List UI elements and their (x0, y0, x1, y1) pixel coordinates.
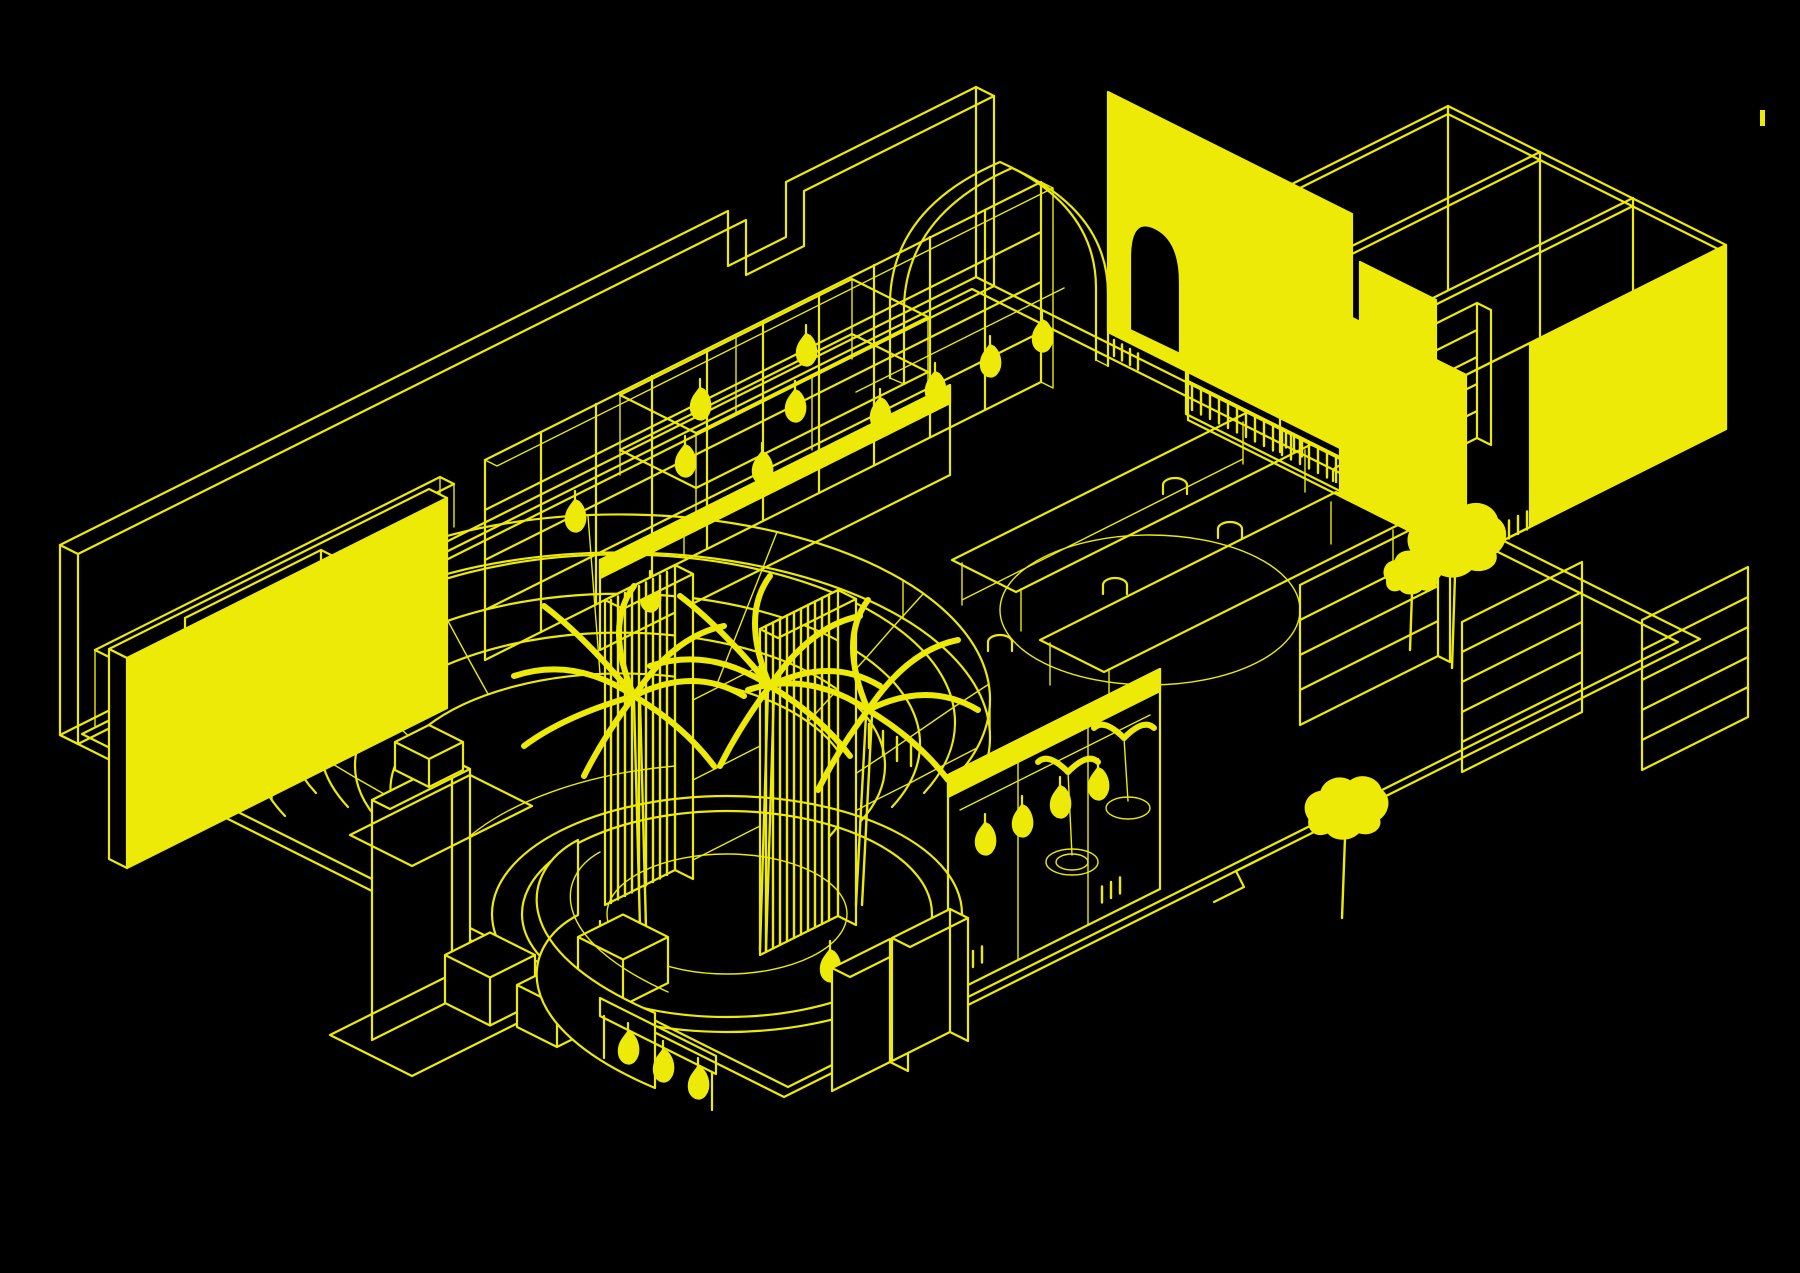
cursor-tick (1760, 110, 1765, 126)
display-wall-cap (109, 649, 127, 868)
cad-viewport[interactable] (0, 0, 1800, 1273)
cad-canvas (0, 0, 1800, 1273)
stray-cursor-tick (1760, 110, 1765, 126)
arched-wall-doorway (1130, 225, 1180, 354)
tower-left-side (675, 565, 693, 879)
